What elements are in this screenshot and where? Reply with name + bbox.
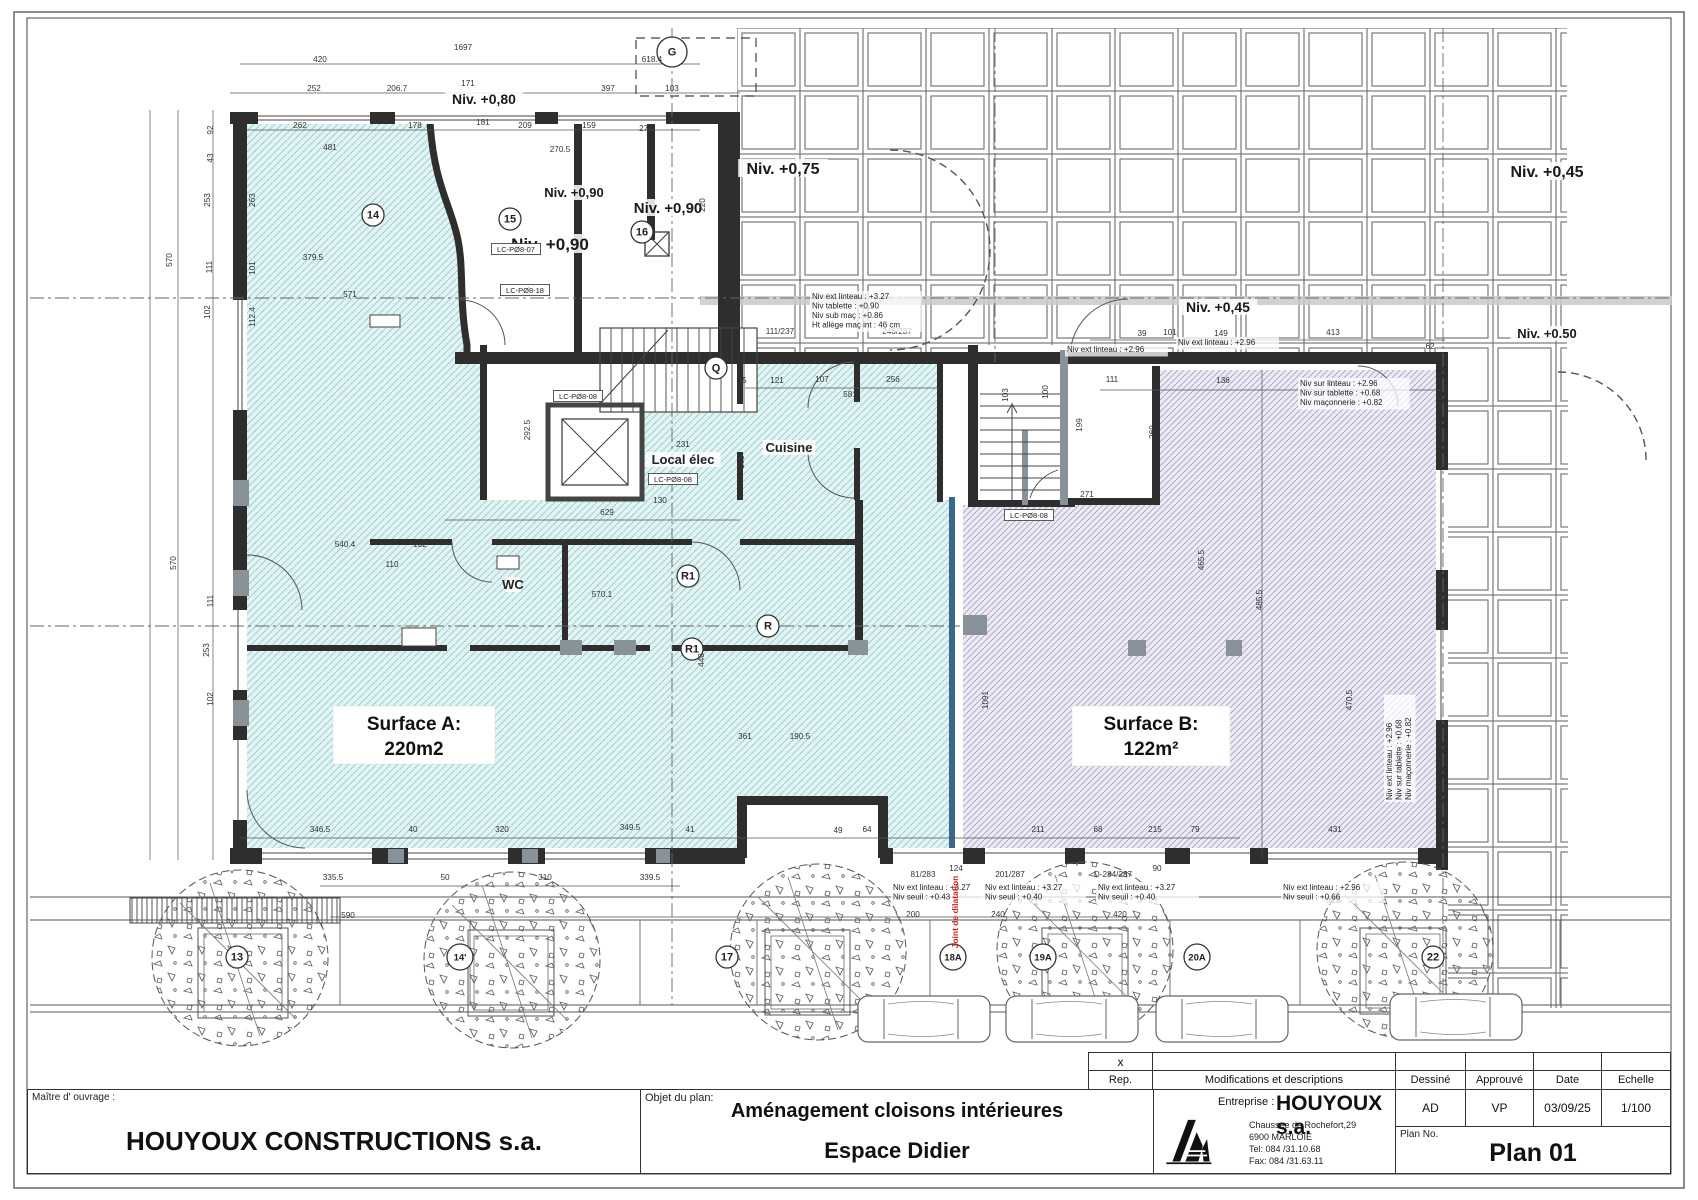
dimension-label: 618.4	[642, 55, 663, 64]
dimension-label: 124	[949, 864, 963, 873]
maitre-douvrage-name: HOUYOUX CONSTRUCTIONS s.a.	[28, 1126, 640, 1157]
annotation-block: Niv ext linteau : +3.27Niv tablette : +0…	[810, 291, 922, 332]
dimension-label: 171	[461, 79, 475, 88]
modifications-header: Modifications et descriptions	[1152, 1070, 1396, 1090]
floor-plan-page: Surface A: 220m2 Surface B: 122m² Niv. +…	[0, 0, 1698, 1200]
dimension-label: 581	[843, 390, 857, 399]
dimension-label: 102	[206, 692, 215, 706]
annotation-line: Niv ext linteau : +2.96	[1067, 345, 1145, 354]
dimension-label: 136	[1216, 376, 1230, 385]
dimension-label: 45	[737, 376, 747, 385]
dimension-label: 215	[1148, 825, 1162, 834]
dimension-label: 240	[991, 910, 1005, 919]
level-label: Niv. +0,45	[1510, 164, 1583, 181]
dimension-label: 335.5	[323, 873, 344, 882]
dimension-label: 111	[1106, 375, 1119, 384]
joint-de-dilatation-label: Joint de dilatation	[950, 876, 960, 949]
entreprise-address-line: Chaussee de Rochefort,29	[1249, 1119, 1356, 1131]
annotation-line: Niv seuil : +0.43	[893, 893, 951, 902]
dimension-label: 181	[476, 118, 490, 127]
dimension-label: 465.5	[1197, 549, 1206, 570]
annotation-block: Niv ext linteau : +2.96	[1065, 344, 1168, 357]
date-value: 03/09/25	[1533, 1089, 1602, 1127]
maitre-douvrage-cell: Maître d' ouvrage : HOUYOUX CONSTRUCTION…	[27, 1089, 641, 1174]
annotation-line: Niv tablette : +0.90	[812, 302, 879, 311]
level-label: Niv. +0,90	[544, 185, 603, 200]
dimension-label: 81/283	[910, 870, 935, 879]
dimension-label: 103	[1001, 388, 1010, 402]
empty-cell	[1395, 1052, 1466, 1071]
annotation-line: Niv ext linteau : +2.96	[1385, 722, 1394, 800]
boxed-label: LC-PØ8-07	[497, 245, 535, 254]
dimension-label: 199	[1075, 418, 1084, 432]
marker-label: 19A	[1034, 953, 1052, 964]
annotation-line: Ht allège maç int : 46 cm	[812, 321, 900, 330]
annotation-line: Niv sur tablette : +0.68	[1300, 389, 1381, 398]
room-label: Local élec	[652, 452, 715, 467]
rep-header: Rep.	[1088, 1070, 1153, 1090]
dimension-label: 252	[307, 84, 321, 93]
annotation-line: Niv seuil : +0.40	[985, 893, 1043, 902]
dimension-label: 49	[833, 826, 843, 835]
dimension-label: 481	[323, 143, 337, 152]
annotation-block: Niv ext linteau : +3.27Niv seuil : +0.40	[1096, 882, 1199, 904]
empty-cell	[1533, 1052, 1602, 1071]
dimension-label: 320	[495, 825, 509, 834]
dimension-label: 629	[600, 508, 614, 517]
level-label: Niv. +0,45	[1186, 299, 1250, 315]
entreprise-address-line: Fax: 084 /31.63.11	[1249, 1155, 1356, 1167]
dimension-label: 41	[685, 825, 695, 834]
date-header: Date	[1533, 1070, 1602, 1090]
dimension-label: 485.5	[1255, 589, 1264, 610]
dimension-label: 570	[169, 556, 178, 570]
dimension-label: 165	[737, 455, 746, 469]
dimension-label: 570	[165, 253, 174, 267]
dimension-label: 100	[1041, 385, 1050, 399]
revision-x-cell: x	[1088, 1052, 1153, 1071]
dimension-label: 571	[343, 290, 357, 299]
level-label: Niv. +0,90	[634, 200, 703, 217]
annotation-line: Niv maçonnerie : +0.82	[1404, 717, 1413, 800]
boxed-label: LC-PØ8-18	[506, 286, 544, 295]
approuve-header: Approuvé	[1465, 1070, 1534, 1090]
marker-label: 22	[1427, 952, 1439, 964]
annotation-block: Niv ext linteau : +2.96Niv seuil : +0.66	[1281, 882, 1384, 904]
dimension-label: 256	[886, 375, 900, 384]
marker-label: G	[668, 47, 677, 59]
dimension-label: 42.5	[704, 849, 720, 858]
level-label: Niv. +0,80	[452, 91, 516, 107]
marker-label: 14'	[454, 953, 467, 964]
dimension-label: 43	[206, 153, 215, 163]
dimension-label: 361	[738, 732, 752, 741]
dimension-label: 253	[202, 643, 211, 657]
dimension-label: 111/237	[766, 327, 795, 336]
dimension-label: 231	[676, 440, 690, 449]
entreprise-address-line: 6900 MARLOIE	[1249, 1131, 1356, 1143]
dimension-label: 211	[1031, 825, 1044, 834]
joint-label: Joint de dilatation	[950, 876, 960, 949]
echelle-value: 1/100	[1601, 1089, 1671, 1127]
dimension-label: 292.5	[523, 419, 532, 440]
dimension-label: 50	[440, 873, 450, 882]
dimension-label: 339.5	[640, 873, 661, 882]
dimension-label: 263	[248, 193, 257, 207]
approuve-value: VP	[1465, 1089, 1534, 1127]
dimension-label: 209	[518, 121, 532, 130]
dimension-label: 121	[770, 376, 784, 385]
dimension-label: 45.5	[682, 849, 698, 858]
marker-label: 18A	[944, 953, 962, 964]
annotation-line: Niv ext linteau : +3.27	[812, 292, 890, 301]
dimension-label: 39	[1137, 329, 1147, 338]
annotation-line: Niv maçonnerie : +0.82	[1300, 398, 1383, 407]
annotation-line: Niv seuil : +0.40	[1098, 893, 1156, 902]
dimension-label: 201/287	[995, 870, 1025, 879]
dimension-label: 590	[341, 911, 355, 920]
entreprise-cell: Entreprise : HOUYOUX s.a. Chaussee de Ro…	[1153, 1089, 1396, 1174]
level-label: Niv. +0,75	[746, 161, 819, 178]
floor-plan-drawing: Surface A: 220m2 Surface B: 122m² Niv. +…	[0, 0, 1698, 1200]
dessine-header: Dessiné	[1395, 1070, 1466, 1090]
dimension-label: 272	[639, 124, 653, 133]
dimension-label: 111	[205, 260, 214, 273]
dimension-label: 68	[1093, 825, 1103, 834]
parked-cars	[858, 994, 1522, 1042]
car-icon	[1006, 996, 1138, 1042]
annotation-block: Niv ext linteau : +2.96	[1176, 337, 1279, 350]
objet-line1: Aménagement cloisons intérieures	[641, 1100, 1153, 1123]
annotation-block: Niv ext linteau : +2.96Niv sur tablette …	[1384, 695, 1416, 802]
dimension-label: 132	[413, 540, 427, 549]
title-block: x Rep. Modifications et descriptions Des…	[27, 1052, 1671, 1174]
dimension-label: 200	[906, 910, 920, 919]
marker-label: Q	[712, 363, 721, 375]
dimension-label: 540.4	[335, 540, 356, 549]
empty-cell	[1465, 1052, 1534, 1071]
room-label: WC	[502, 577, 524, 592]
dimension-label: 159	[582, 121, 596, 130]
echelle-header: Echelle	[1601, 1070, 1671, 1090]
houyoux-logo	[1162, 1112, 1214, 1166]
dimension-label: 79	[1190, 825, 1200, 834]
surface-b-area: 122m²	[1124, 739, 1179, 760]
dimension-label: 90	[1152, 864, 1162, 873]
annotation-line: Niv seuil : +0.66	[1283, 893, 1341, 902]
plan-no-cell: Plan No. Plan 01	[1395, 1126, 1671, 1174]
dessine-value: AD	[1395, 1089, 1466, 1127]
dimension-label: 397	[601, 84, 615, 93]
dimension-label: D-284/287	[1094, 870, 1133, 879]
annotation-line: Niv ext linteau : +3.27	[1098, 883, 1176, 892]
marker-label: 15	[504, 214, 516, 226]
dimension-label: 92	[206, 125, 215, 135]
marker-label: 13	[231, 952, 243, 964]
annotation-line: Niv sur tablette : +0.68	[1395, 719, 1404, 800]
car-icon	[1390, 994, 1522, 1040]
surface-a-area: 220m2	[384, 739, 443, 760]
annotation-line: Niv ext linteau : +2.96	[1178, 338, 1256, 347]
dimension-label: 420	[1113, 910, 1127, 919]
boxed-label: LC-PØ8-08	[654, 475, 692, 484]
dimension-label: 110	[385, 560, 398, 569]
dimension-label: 253	[203, 193, 212, 207]
expansion-joint-wall	[949, 497, 955, 858]
entreprise-label: Entreprise :	[1218, 1096, 1274, 1108]
dimension-label: 570.1	[592, 590, 613, 599]
car-icon	[1156, 996, 1288, 1042]
dimension-label: 130	[653, 496, 667, 505]
marker-label: 16	[636, 227, 648, 239]
marker-label: R	[764, 621, 772, 633]
dimension-label: 149	[1214, 329, 1228, 338]
dimension-label: 111	[206, 594, 215, 607]
surface-a-label: Surface A:	[367, 714, 461, 735]
annotation-block: Niv ext linteau : +3.27Niv seuil : +0.43	[891, 882, 994, 904]
dimension-label: 262	[293, 121, 307, 130]
dimension-label: 62	[1425, 342, 1435, 351]
dimension-label: 107	[815, 375, 829, 384]
car-icon	[858, 996, 990, 1042]
dimension-label: 448	[697, 653, 706, 667]
empty-cell	[1601, 1052, 1671, 1071]
dimension-label: 431	[1328, 825, 1342, 834]
dimension-label: 102	[203, 305, 212, 319]
marker-label: 17	[721, 952, 733, 964]
dimension-label: 1091	[981, 690, 990, 709]
dimension-label: 349.5	[620, 823, 641, 832]
dimension-label: 379.5	[303, 253, 324, 262]
marker-label: 14	[367, 210, 380, 222]
entreprise-address-line: Tel: 084 /31.10.68	[1249, 1143, 1356, 1155]
annotation-line: Niv ext linteau : +2.96	[1283, 883, 1361, 892]
dimension-label: 178	[408, 121, 422, 130]
dimension-label: 420	[313, 55, 327, 64]
dimension-label: 112.4	[248, 307, 257, 327]
dimension-label: 346.5	[310, 825, 331, 834]
dimension-label: 310	[538, 873, 552, 882]
objet-du-plan-cell: Objet du plan: Aménagement cloisons inté…	[640, 1089, 1154, 1174]
maitre-douvrage-label: Maître d' ouvrage :	[32, 1092, 115, 1103]
dimension-label: 40	[408, 825, 418, 834]
dimension-label: 103	[665, 84, 679, 93]
marker-label: R1	[681, 571, 695, 583]
plan-no-value: Plan 01	[1396, 1139, 1670, 1168]
surface-b-label: Surface B:	[1103, 714, 1198, 735]
dimension-label: 220	[698, 198, 707, 212]
annotation-line: Niv sur linteau : +2.96	[1300, 379, 1378, 388]
dimension-label: 1697	[454, 43, 473, 52]
annotation-line: Niv ext linteau : +3.27	[985, 883, 1063, 892]
annotation-block: Niv sur linteau : +2.96Niv sur tablette …	[1298, 378, 1410, 410]
dimension-label: 206.7	[387, 84, 408, 93]
objet-line2: Espace Didier	[641, 1138, 1153, 1164]
annotation-block: Niv ext linteau : +3.27Niv seuil : +0.40	[983, 882, 1086, 904]
dimension-label: 64	[862, 825, 872, 834]
dimension-label: 190.5	[790, 732, 811, 741]
level-label: Niv. +0.50	[1517, 326, 1576, 341]
room-label: Cuisine	[766, 440, 813, 455]
dimension-label: 101	[248, 261, 257, 275]
boxed-label: LC-PØ8-08	[1010, 511, 1048, 520]
dimension-label: 271	[1080, 490, 1094, 499]
dimension-label: 413	[1326, 328, 1340, 337]
dimension-label: 270.5	[550, 145, 571, 154]
dimension-label: 101	[1163, 328, 1177, 337]
revision-desc-cell	[1152, 1052, 1396, 1071]
marker-label: 20A	[1188, 953, 1206, 964]
annotation-line: Niv sub maç : +0.86	[812, 311, 883, 320]
boxed-label: LC-PØ8-08	[559, 392, 597, 401]
dimension-label: 470.5	[1345, 689, 1354, 710]
dimension-label: 269	[1148, 425, 1157, 439]
